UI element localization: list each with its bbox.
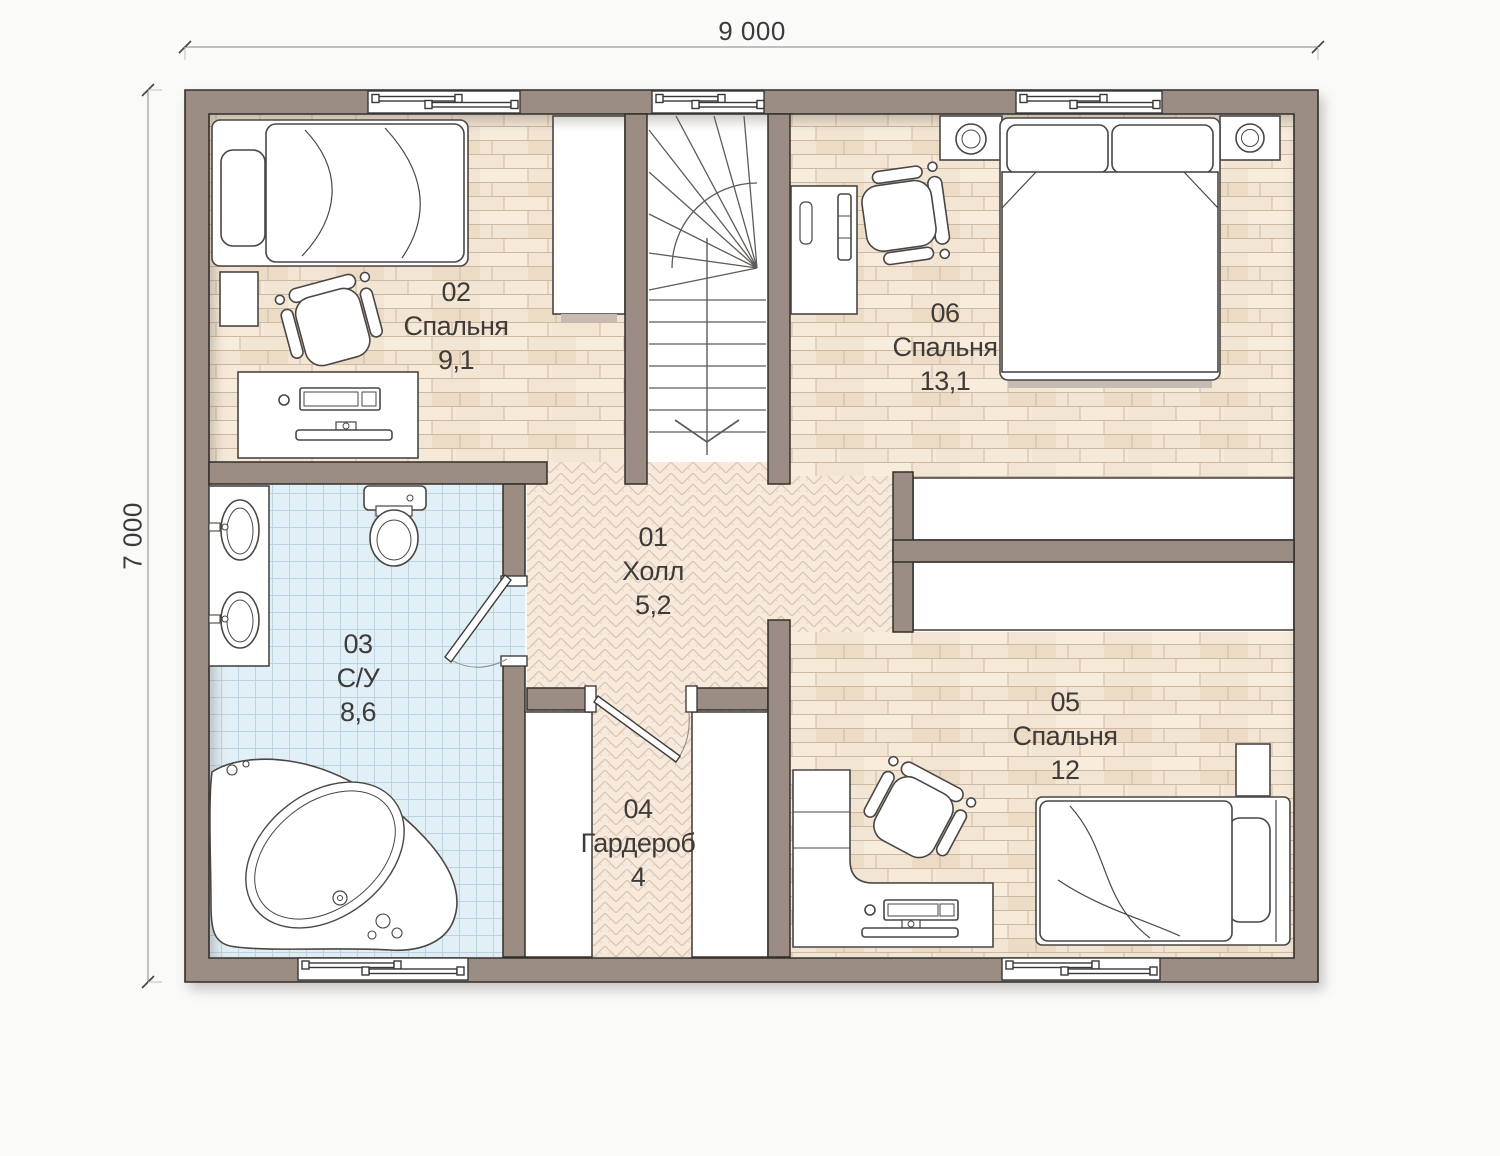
stairwell-wall-left: [625, 114, 647, 484]
monitor-icon: [862, 928, 958, 937]
double-bed-icon: [1000, 118, 1220, 388]
cabinet-shadow: [561, 314, 617, 322]
monitor-icon: [838, 194, 851, 260]
closet-divider-wall-horizontal: [893, 540, 1294, 562]
pillow-icon: [1007, 125, 1108, 173]
double-vanity-icon: [209, 486, 269, 666]
hall-floor-strip: [790, 476, 893, 632]
stairwell-wall-right: [768, 114, 790, 484]
closet-room05: [913, 562, 1294, 630]
bath-east-wall-lower: [503, 658, 525, 957]
faucet-icon: [209, 615, 220, 623]
window-icon: [368, 91, 520, 113]
wardrobe-east-wall: [768, 620, 790, 957]
pillow-icon: [1228, 818, 1270, 922]
desk-icon: [238, 372, 418, 458]
hall-floor: [527, 462, 790, 688]
nightstand-icon: [1220, 116, 1280, 160]
floor-plan-canvas: 9 000 7 000 01 Холл 5,2 02 Спальня 9,1 0…: [0, 0, 1500, 1156]
wardrobe-cabinet-room02: [553, 116, 625, 314]
wardrobe-north-wall-left: [527, 688, 594, 710]
faucet-icon: [227, 765, 237, 775]
closet-room06: [913, 478, 1294, 540]
monitor-icon: [296, 430, 392, 440]
dimension-width-label: 9 000: [718, 16, 786, 47]
room02-bath-wall: [209, 462, 547, 484]
window-icon: [1002, 958, 1160, 980]
nightstand-icon: [940, 116, 1002, 160]
nightstand-icon: [1236, 744, 1270, 796]
bath-doorway-floor: [503, 585, 525, 658]
window-icon: [652, 91, 764, 113]
mouse-icon: [279, 395, 289, 405]
dimension-height-label: 7 000: [118, 502, 149, 570]
mouse-icon: [865, 905, 875, 915]
pillow-icon: [1112, 125, 1213, 173]
floor-plan-drawing: [0, 0, 1500, 1156]
faucet-icon: [209, 523, 220, 531]
single-bed-icon: [1036, 797, 1290, 945]
pillow-icon: [221, 150, 265, 246]
closet-wardrobe-right: [692, 712, 768, 957]
bath-east-wall-upper: [503, 484, 525, 585]
nightstand-icon: [220, 272, 258, 326]
desk-icon: [791, 186, 857, 314]
window-icon: [298, 958, 468, 980]
single-bed-icon: [212, 120, 468, 266]
window-icon: [1016, 91, 1162, 113]
wardrobe-north-wall-right: [688, 688, 768, 710]
